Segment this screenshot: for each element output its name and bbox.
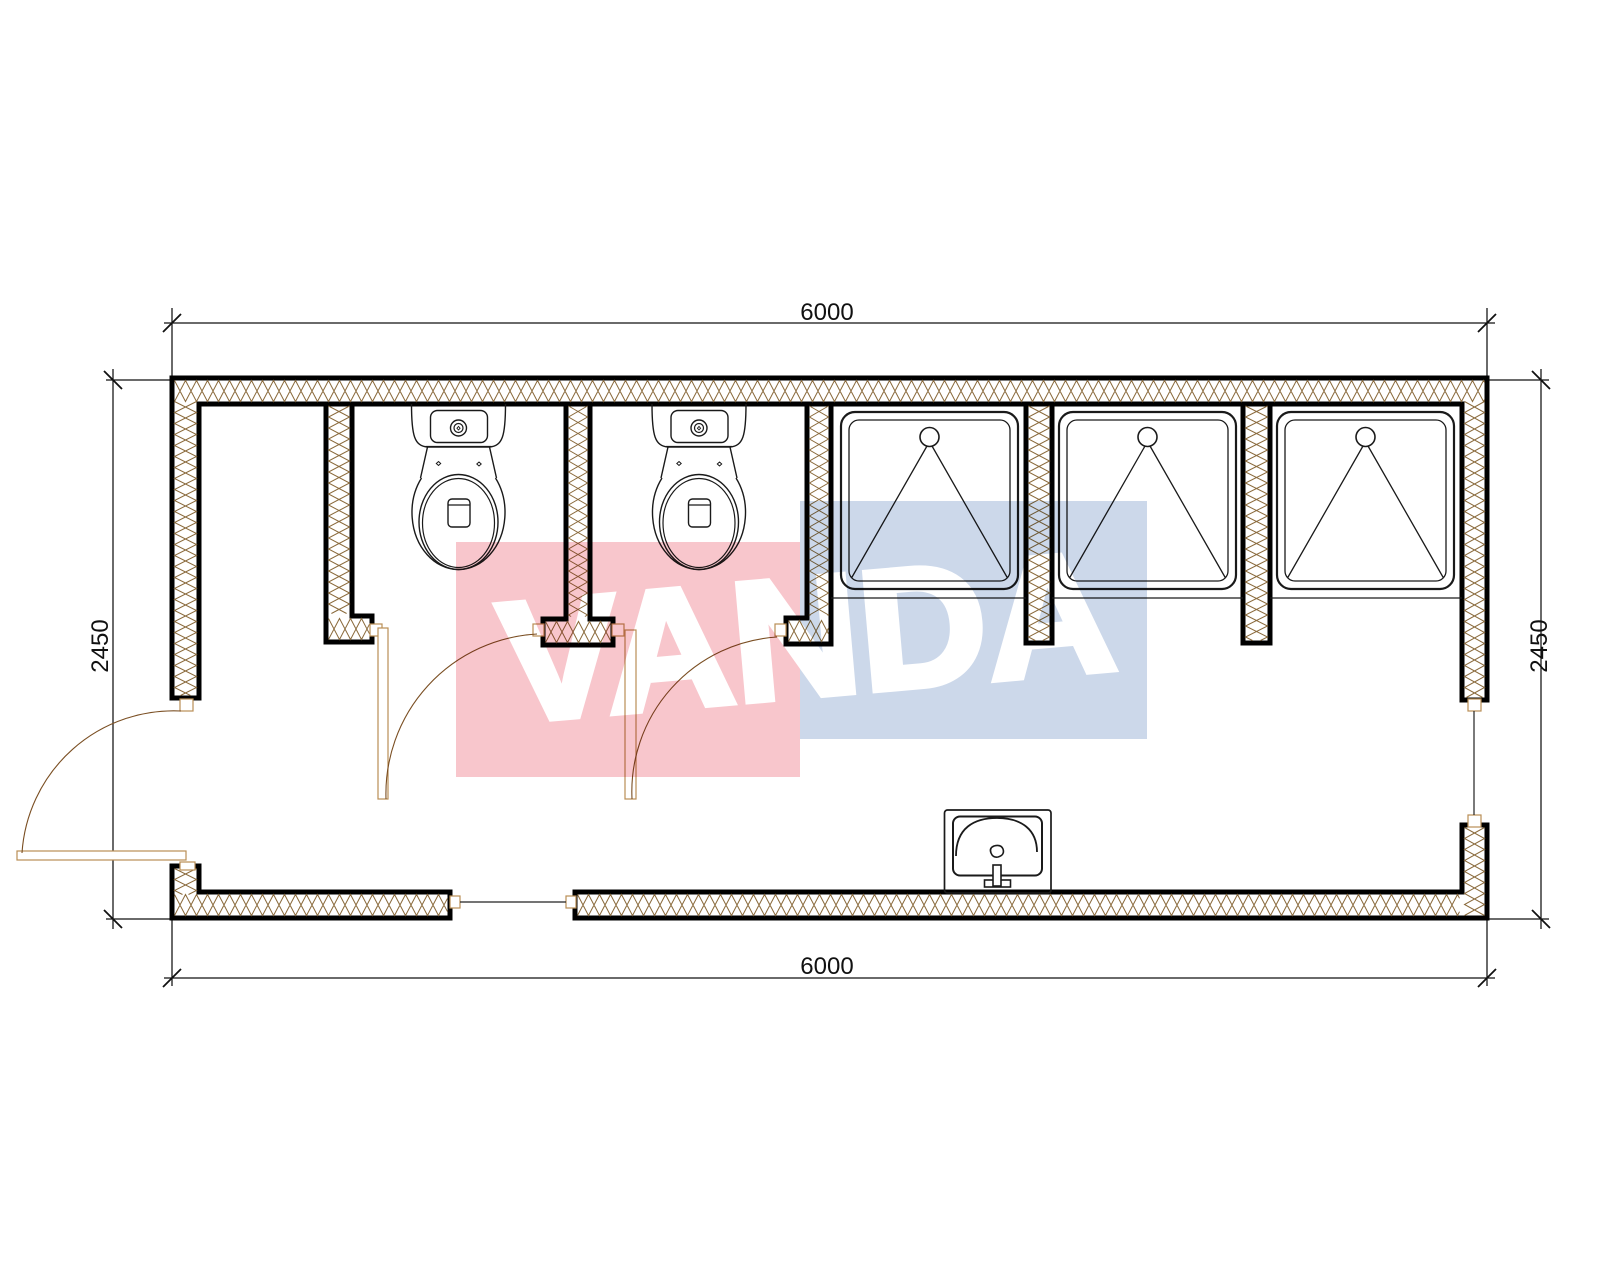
svg-text:6000: 6000 <box>800 953 853 980</box>
svg-text:2450: 2450 <box>1526 619 1553 672</box>
svg-text:2450: 2450 <box>87 619 114 672</box>
svg-text:6000: 6000 <box>800 299 853 326</box>
